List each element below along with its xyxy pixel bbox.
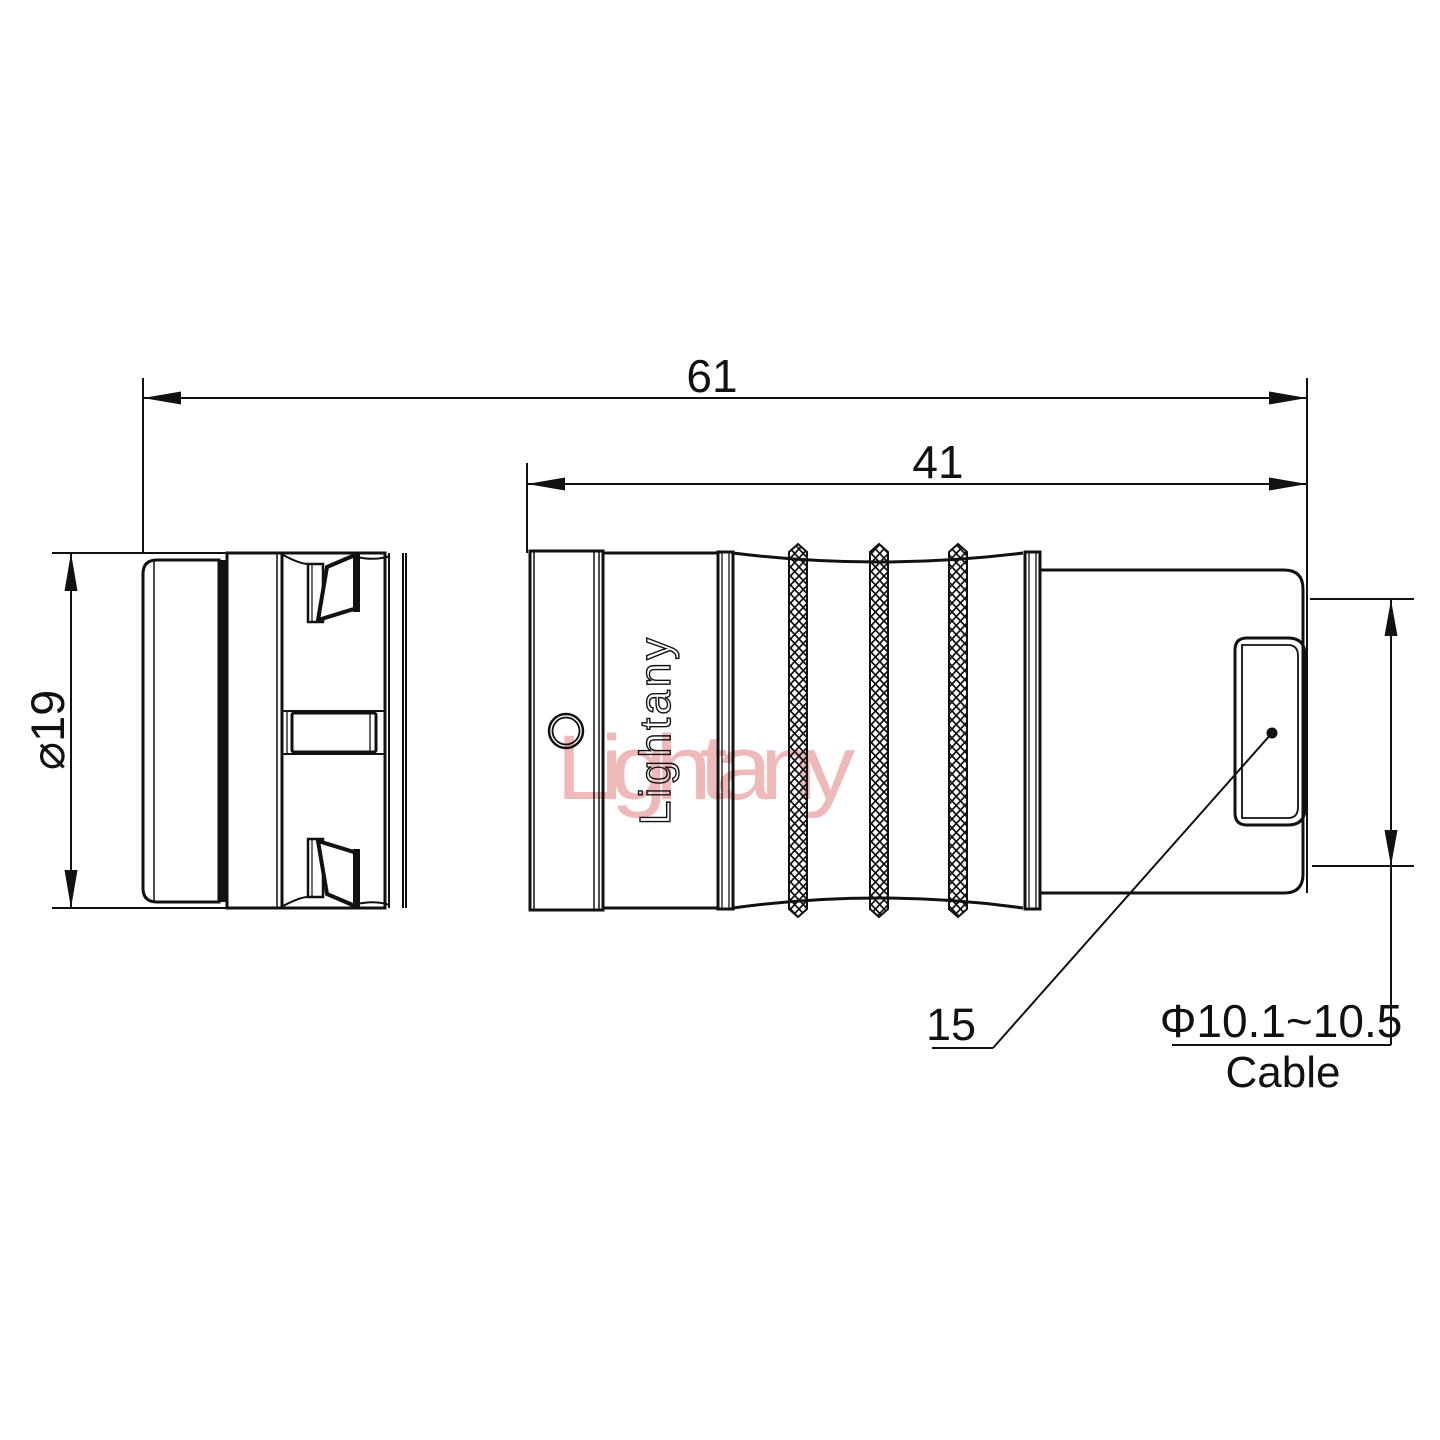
cable-caption-label: Cable [1226,1048,1341,1097]
arrow-cable-bottom [1385,830,1398,866]
arrow-41-left [527,478,565,491]
knurl-band-3 [949,544,967,917]
knurl-right-cap-fill [1025,552,1040,909]
cable-range-label: Φ10.1~10.5 [1160,995,1403,1047]
brand-watermark: Lightany [556,717,855,819]
arrow-41-right [1269,478,1307,491]
front-body-fill [227,553,530,908]
knurl-band-1 [789,544,807,917]
arrow-dia19-top [65,553,78,591]
connector-technical-drawing-page: Lightany [0,0,1440,1440]
arrow-dia19-bottom [65,870,78,908]
arrow-cable-top [1385,600,1398,636]
dim-dia19-label: ⌀19 [21,690,74,771]
dim-61-label: 61 [686,350,737,402]
brand-engraving: Lightany [631,635,680,825]
arrow-61-right [1269,392,1307,405]
dim-15-label: 15 [926,999,976,1050]
arrow-61-left [143,392,181,405]
knurl-band-2 [870,544,888,917]
connector-drawing-canvas: Lightany [0,0,1440,1440]
dim-41-label: 41 [912,436,963,488]
